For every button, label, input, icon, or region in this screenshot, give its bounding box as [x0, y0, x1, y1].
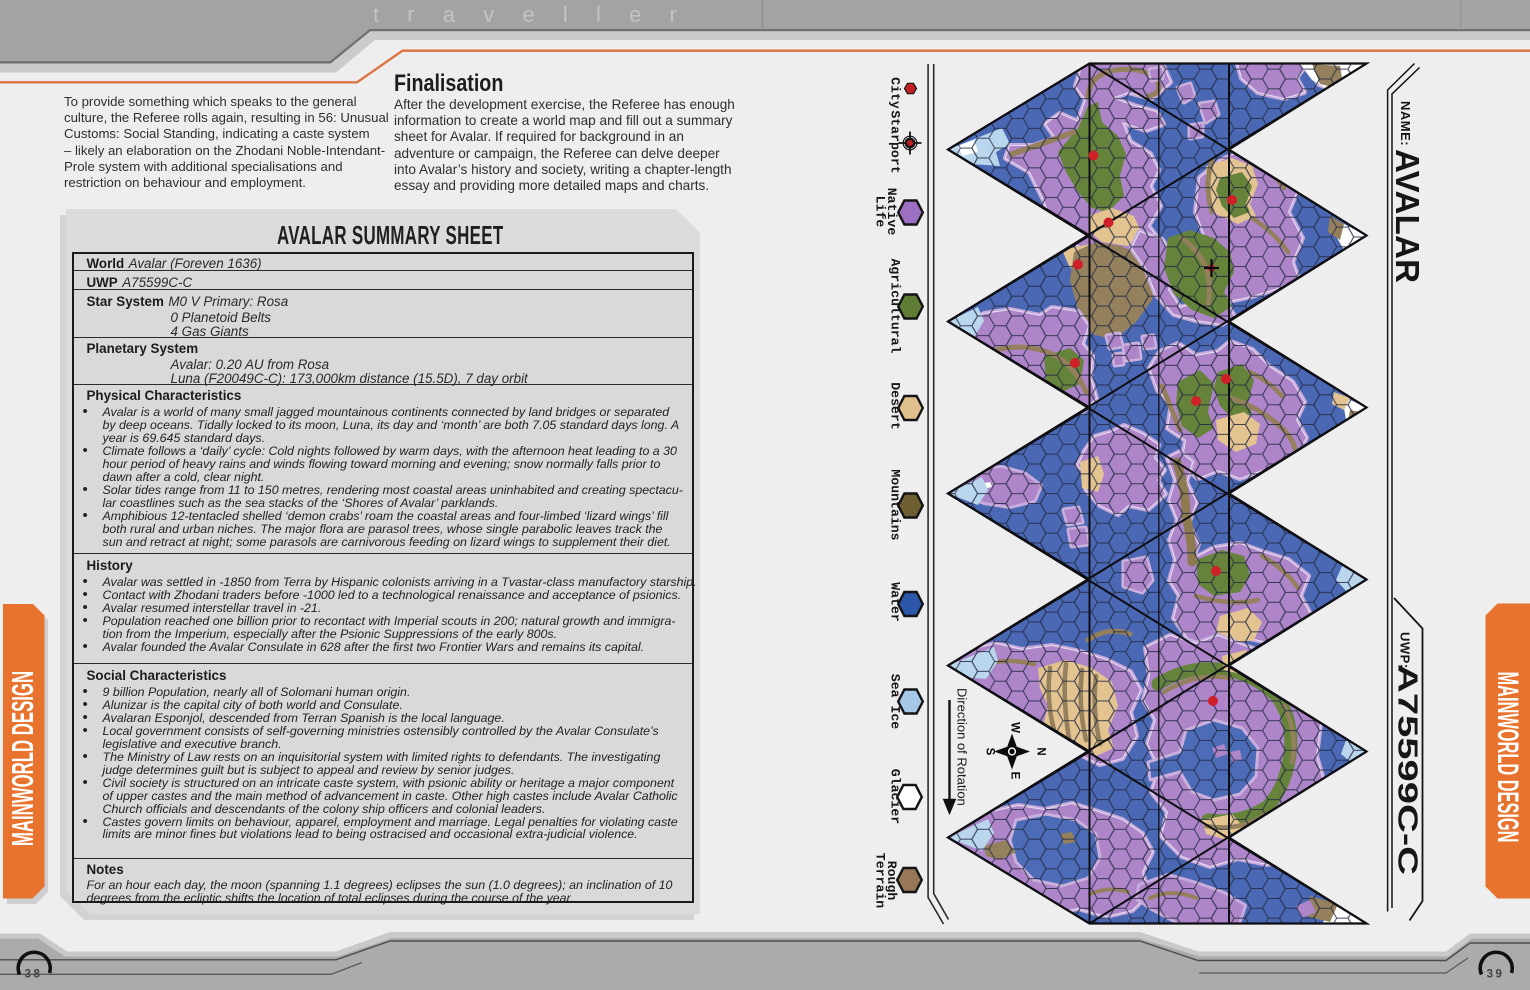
svg-text:39: 39: [1487, 969, 1505, 981]
svg-text:Starport: Starport: [888, 110, 903, 173]
svg-text:City: City: [888, 77, 903, 109]
svg-text:Life: Life: [873, 196, 888, 228]
svg-text:E: E: [1009, 772, 1021, 780]
svg-text:AVALAR: AVALAR: [1389, 149, 1426, 283]
svg-text:N: N: [1035, 747, 1047, 755]
svg-text:Terrain: Terrain: [873, 853, 888, 908]
svg-text:38: 38: [25, 969, 43, 981]
svg-text:S: S: [984, 748, 996, 756]
svg-text:W: W: [1009, 722, 1021, 733]
svg-text:A75599C-C: A75599C-C: [1393, 664, 1424, 875]
svg-text:NAME:: NAME:: [1398, 101, 1413, 146]
svg-text:Direction of Rotation: Direction of Rotation: [955, 688, 970, 806]
svg-text:MAINWORLD DESIGN: MAINWORLD DESIGN: [1491, 672, 1524, 843]
